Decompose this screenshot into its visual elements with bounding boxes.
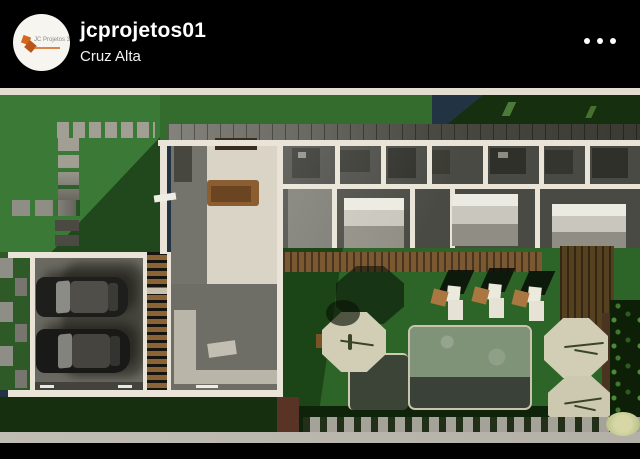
sofa-seat [211,186,251,202]
side-table [430,288,448,306]
garage-top-wall [8,252,147,258]
post-image[interactable] [0,88,640,443]
house-top-wall [158,140,640,146]
house-bottom-wall [8,390,283,397]
dot-icon [584,38,590,44]
dot-icon [610,38,616,44]
kitchen-counter [174,310,196,376]
living-kitchen-block [171,140,283,397]
car-roof [70,281,108,313]
stepping-stones-shaded [55,220,79,250]
driveway-mark [118,385,132,388]
dot-icon [597,38,603,44]
swimming-pool [408,325,532,410]
lounger-seat [529,301,544,321]
street-strip-top [0,88,640,95]
sidewalk [0,432,640,443]
bottom-bar [0,443,640,459]
car-1 [36,277,128,317]
planter-box [277,397,299,437]
tree-branch [574,405,596,412]
tree-branch [574,349,598,355]
avatar-logo-underline [34,47,60,49]
car-rear-glass [108,283,118,311]
grass-paver-column [0,258,13,390]
pool-water [410,327,532,377]
tree-branch [564,342,604,348]
kitchen-counter [174,370,277,384]
username[interactable]: jcprojetos01 [80,19,206,43]
stair-landing [147,288,167,294]
kitchen-mark [196,385,218,388]
car-rear-glass [110,336,120,366]
rear-lawn-band [0,397,283,432]
sun-lounger [514,271,556,323]
stepping-stones-row [12,200,80,216]
stepping-stones-column [58,138,79,200]
instagram-post-screen: JC Projetos 3D jcprojetos01 Cruz Alta [0,0,640,459]
grass-paver-column [15,278,27,390]
tree-branch [564,397,602,404]
car-windshield [56,280,70,313]
cabinet [174,146,192,182]
lit-tree-canopy [606,412,640,436]
location-label[interactable]: Cruz Alta [80,48,141,65]
lounger-seat [489,298,504,318]
car-2 [36,329,130,373]
bedroom-wing [283,140,640,258]
garage-block [0,252,171,390]
window-light [283,140,640,258]
shrub-strip [303,417,640,432]
tree-canopy [326,300,360,326]
tree-branch [348,334,352,350]
side-table [511,289,529,307]
lounger-seat [448,300,463,320]
car-roof [72,334,110,368]
sun-lounger [474,268,516,320]
avatar-logo-text: JC Projetos 3D [34,37,70,43]
staircase [147,252,167,390]
side-table [471,286,489,304]
driveway-mark [40,385,54,388]
car-windshield [58,333,72,368]
tree-branch [340,340,374,347]
more-options-button[interactable] [584,37,618,45]
post-header: JC Projetos 3D jcprojetos01 Cruz Alta [0,0,640,88]
sun-lounger [433,270,475,322]
profile-avatar[interactable]: JC Projetos 3D [13,14,70,71]
stepping-stones-row [57,122,155,138]
